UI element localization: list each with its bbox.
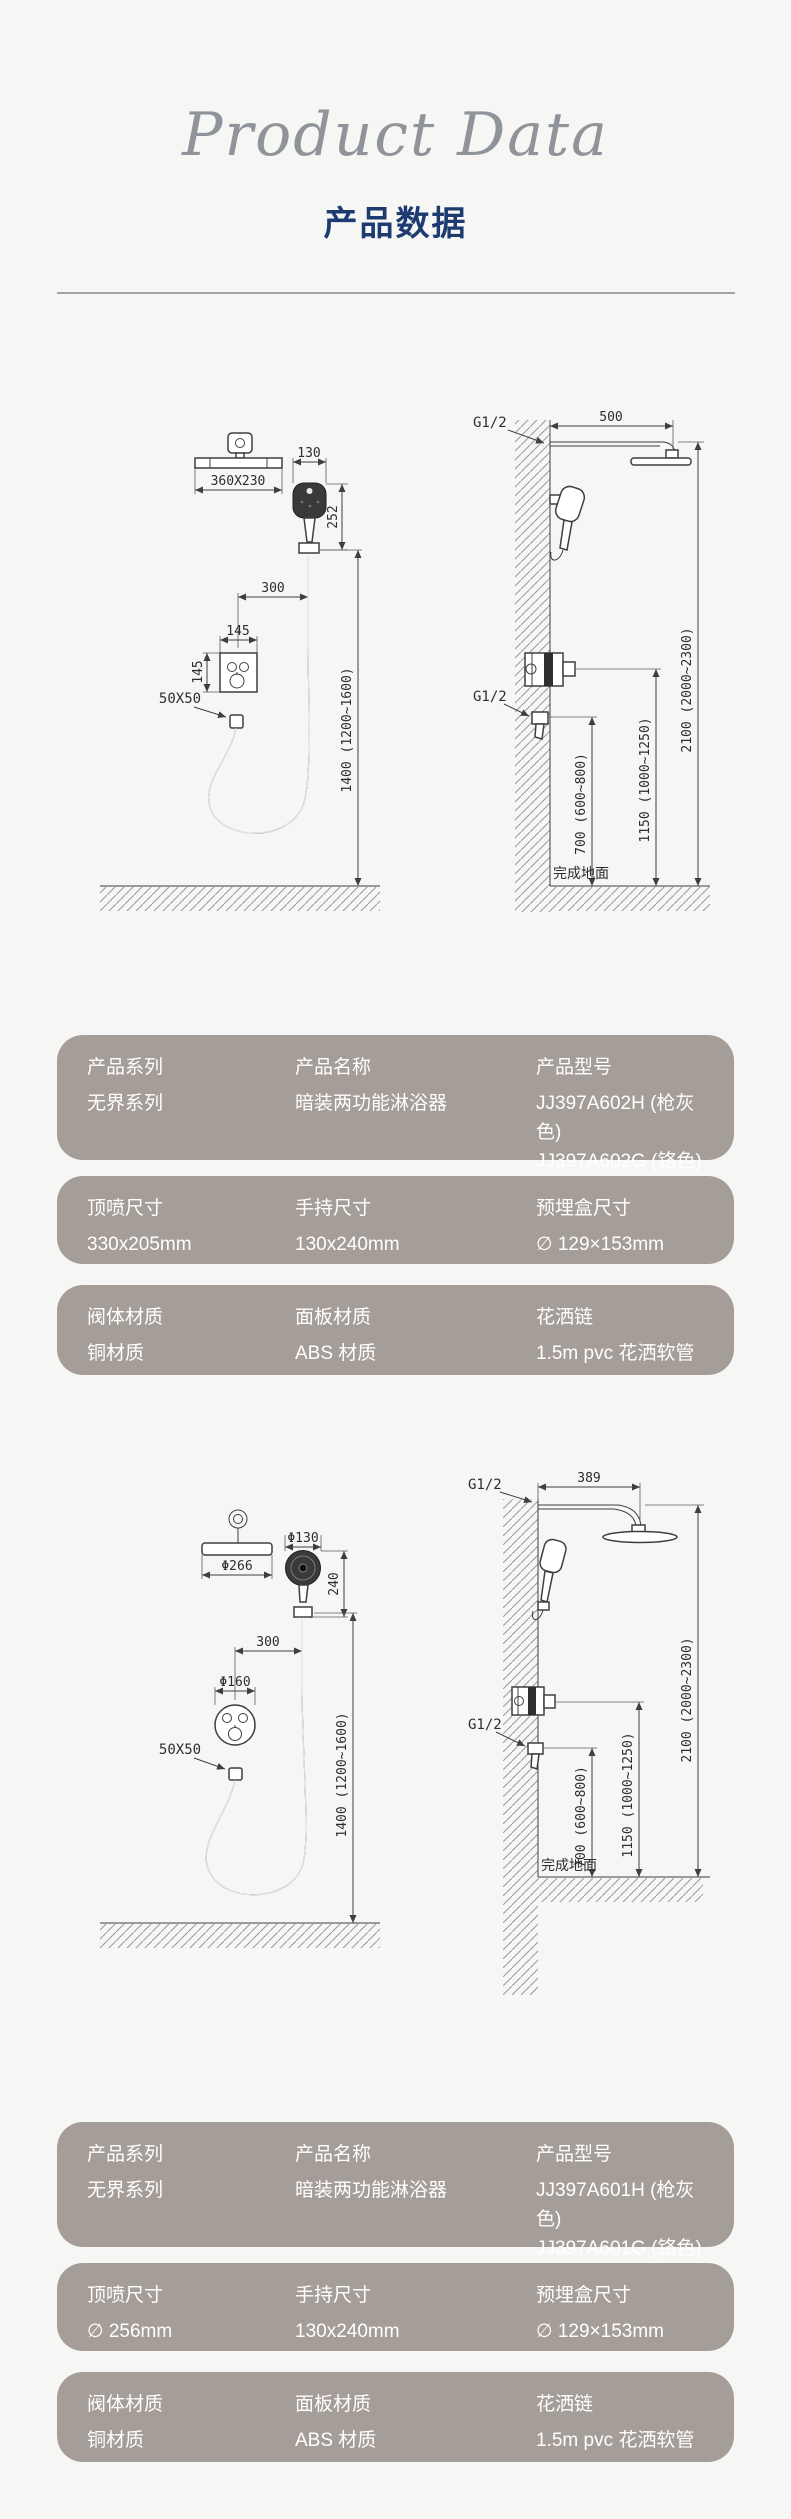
- dim-plate-diameter: Φ266: [221, 1559, 252, 1574]
- spec-label: 产品系列: [87, 2143, 295, 2166]
- spec-card-product: 产品系列无界系列 产品名称暗装两功能淋浴器 产品型号JJ397A602H (枪灰…: [57, 1035, 734, 1160]
- spec-cards-group-b: 产品系列无界系列 产品名称暗装两功能淋浴器 产品型号JJ397A601H (枪灰…: [57, 2122, 734, 2462]
- dim-valve-width: 145: [226, 624, 249, 639]
- spec-label: 产品型号: [536, 1056, 716, 1079]
- spec-label: 阀体材质: [87, 2393, 295, 2416]
- spec-label: 预埋盒尺寸: [536, 2284, 716, 2307]
- side-view-figure: G1/2 389 G1/2: [468, 1471, 710, 1995]
- spec-value: JJ397A601H (枪灰色): [536, 2176, 716, 2234]
- valve-outlet-stub: [563, 662, 575, 676]
- spec-value: ABS 材质: [295, 2426, 536, 2455]
- dim-valve-height: 145: [191, 660, 206, 683]
- spec-value: 铜材质: [87, 1339, 295, 1368]
- dim-offset: 300: [256, 1635, 279, 1650]
- product-data-page: Product Data 产品数据 360X230: [0, 0, 791, 2519]
- hand-shower-side: [553, 484, 586, 524]
- spec-value: 1.5m pvc 花洒软管: [536, 1339, 716, 1368]
- spec-label: 产品名称: [295, 1056, 536, 1079]
- spec-label: 面板材质: [295, 2393, 536, 2416]
- spec-value: 1.5m pvc 花洒软管: [536, 2426, 716, 2455]
- valve-plate: [220, 653, 257, 692]
- front-view-figure: 360X230 130 252 300 145: [100, 433, 380, 911]
- spec-card-materials: 阀体材质铜材质 面板材质ABS 材质 花洒链1.5m pvc 花洒软管: [57, 1285, 734, 1375]
- divider: [57, 292, 735, 294]
- dim-outlet: 50X50: [159, 691, 201, 707]
- spec-label: 产品型号: [536, 2143, 716, 2166]
- wall-bracket: [294, 1607, 312, 1617]
- spec-value: ∅ 129×153mm: [536, 1230, 716, 1259]
- hand-shower-handle: [304, 518, 315, 542]
- spec-label: 手持尺寸: [295, 2284, 536, 2307]
- hand-shower-side: [538, 1538, 568, 1575]
- spec-label: 阀体材质: [87, 1306, 295, 1329]
- spec-value: JJ397A602H (枪灰色): [536, 1089, 716, 1147]
- spec-label: 顶喷尺寸: [87, 1197, 295, 1220]
- spec-value: 暗装两功能淋浴器: [295, 2176, 536, 2205]
- floor-label: 完成地面: [553, 865, 609, 881]
- dim-valve-height-install: 1150 (1000~1250): [638, 717, 653, 842]
- spec-card-dimensions: 顶喷尺寸330x205mm 手持尺寸130x240mm 预埋盒尺寸∅ 129×1…: [57, 1176, 734, 1264]
- rain-head-side: [603, 1532, 677, 1543]
- spec-card-dimensions: 顶喷尺寸∅ 256mm 手持尺寸130x240mm 预埋盒尺寸∅ 129×153…: [57, 2263, 734, 2351]
- spec-value: 暗装两功能淋浴器: [295, 1089, 536, 1118]
- dim-arm-length: 389: [577, 1471, 600, 1486]
- dim-valve-height-install: 1150 (1000~1250): [621, 1732, 636, 1857]
- rain-shower-plate: [202, 1543, 272, 1555]
- dim-hand-diameter: Φ130: [287, 1531, 318, 1546]
- spec-value: ABS 材质: [295, 1339, 536, 1368]
- dim-thread-mid: G1/2: [468, 1717, 502, 1733]
- spec-label: 手持尺寸: [295, 1197, 536, 1220]
- spec-label: 产品名称: [295, 2143, 536, 2166]
- technical-drawing-square-model: 360X230 130 252 300 145: [80, 400, 720, 940]
- dim-hand-width: 130: [297, 446, 320, 461]
- spec-value: 130x240mm: [295, 2317, 536, 2346]
- ceiling-joint: [228, 433, 252, 453]
- dim-valve-diameter: Φ160: [219, 1675, 250, 1690]
- floor-hatch: [100, 887, 380, 911]
- script-title: Product Data: [0, 100, 791, 170]
- hand-shower-holder: [538, 1602, 549, 1610]
- wall-bracket: [299, 543, 319, 553]
- side-view-figure: G1/2 500 G1/2: [473, 410, 710, 912]
- spec-value: 铜材质: [87, 2426, 295, 2455]
- valve-outlet-stub: [544, 1695, 555, 1708]
- dim-thread-top: G1/2: [468, 1477, 502, 1493]
- spec-value: 无界系列: [87, 1089, 295, 1118]
- dim-thread-top: G1/2: [473, 415, 507, 431]
- dim-install-height: 1400 (1200~1600): [335, 1712, 350, 1837]
- dim-total-height: 2100 (2000~2300): [680, 1637, 695, 1762]
- hand-shower-handle: [299, 1585, 308, 1602]
- spec-value: JJ397A601G (铬色): [536, 2234, 716, 2263]
- spec-value: ∅ 256mm: [87, 2317, 295, 2346]
- dim-thread-mid: G1/2: [473, 689, 507, 705]
- dim-install-height: 1400 (1200~1600): [340, 667, 355, 792]
- dim-outlet-height: 700 (600~800): [574, 753, 589, 855]
- page-title: 产品数据: [0, 196, 791, 245]
- shower-hose: [208, 556, 309, 833]
- spec-value: 330x205mm: [87, 1230, 295, 1259]
- floor-hatch: [100, 1924, 380, 1948]
- hanger-ring: [229, 1510, 247, 1528]
- spec-card-materials: 阀体材质铜材质 面板材质ABS 材质 花洒链1.5m pvc 花洒软管: [57, 2372, 734, 2462]
- spec-value: ∅ 129×153mm: [536, 2317, 716, 2346]
- floor-label: 完成地面: [541, 1857, 597, 1873]
- dim-outlet-height: 700 (600~800): [574, 1766, 589, 1868]
- spec-label: 顶喷尺寸: [87, 2284, 295, 2307]
- spec-value: 130x240mm: [295, 1230, 536, 1259]
- spec-label: 花洒链: [536, 1306, 716, 1329]
- lower-outlet: [528, 1743, 543, 1754]
- dim-offset: 300: [261, 581, 284, 596]
- spec-label: 面板材质: [295, 1306, 536, 1329]
- spec-label: 花洒链: [536, 2393, 716, 2416]
- front-view-figure: Φ266 Φ130 240 300 Φ160: [100, 1510, 380, 1948]
- lower-outlet: [532, 712, 548, 724]
- hose-outlet: [230, 715, 243, 728]
- spec-value: JJ397A602G (铬色): [536, 1147, 716, 1176]
- spec-label: 预埋盒尺寸: [536, 1197, 716, 1220]
- spec-card-product: 产品系列无界系列 产品名称暗装两功能淋浴器 产品型号JJ397A601H (枪灰…: [57, 2122, 734, 2247]
- dim-hand-height: 240: [327, 1572, 342, 1595]
- hose-outlet: [229, 1768, 242, 1780]
- dim-plate-size: 360X230: [211, 474, 266, 489]
- dim-arm-length: 500: [599, 410, 622, 425]
- spec-value: 无界系列: [87, 2176, 295, 2205]
- technical-drawing-round-model: Φ266 Φ130 240 300 Φ160: [80, 1455, 720, 2015]
- rain-shower-plate: [195, 458, 282, 468]
- spec-label: 产品系列: [87, 1056, 295, 1079]
- dim-hand-height: 252: [326, 505, 341, 528]
- shower-hose: [206, 1619, 306, 1895]
- dim-outlet: 50X50: [159, 1742, 201, 1758]
- rain-head-side: [631, 458, 691, 465]
- dim-total-height: 2100 (2000~2300): [680, 627, 695, 752]
- spec-cards-group-a: 产品系列无界系列 产品名称暗装两功能淋浴器 产品型号JJ397A602H (枪灰…: [57, 1035, 734, 1375]
